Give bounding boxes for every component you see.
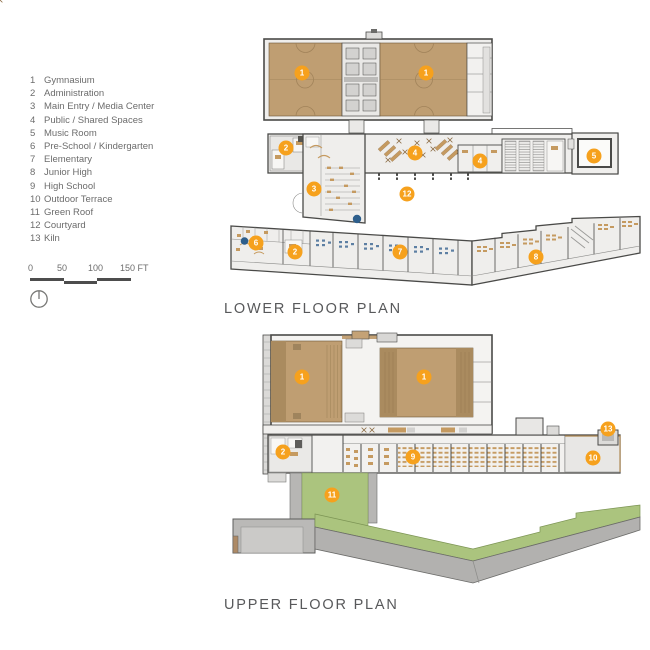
legend-item: 13Kiln [30, 232, 154, 245]
legend-item-label: Courtyard [44, 220, 86, 231]
legend-item-label: Pre-School / Kindergarten [44, 141, 153, 152]
legend-item: 7Elementary [30, 153, 154, 166]
scale-segment [97, 278, 131, 281]
upper-plan-roofscape [233, 473, 640, 583]
legend-item-label: Public / Shared Spaces [44, 115, 143, 126]
scale-segment [30, 278, 64, 281]
lower-plan-gym-block [264, 29, 492, 133]
legend-item-label: Outdoor Terrace [44, 194, 112, 205]
legend-item-label: Music Room [44, 128, 97, 139]
floor-plan-sheet: 1Gymnasium2Administration3Main Entry / M… [0, 0, 650, 650]
legend-item: 2Administration [30, 87, 154, 100]
legend-item-number: 12 [30, 219, 44, 232]
scale-label-150: 150 FT [120, 263, 149, 273]
scale-label-0: 0 [28, 263, 33, 273]
scale-label-50: 50 [57, 263, 67, 273]
legend-item-label: Main Entry / Media Center [44, 101, 154, 112]
legend-item: 6Pre-School / Kindergarten [30, 140, 154, 153]
legend-item: 9High School [30, 180, 154, 193]
legend-item: 12Courtyard [30, 219, 154, 232]
legend-item-number: 7 [30, 153, 44, 166]
legend-item-number: 5 [30, 127, 44, 140]
legend-item-label: Kiln [44, 233, 60, 244]
legend-item-label: Administration [44, 88, 104, 99]
legend-item: 11Green Roof [30, 206, 154, 219]
preschool-feature-dot [241, 237, 249, 245]
scale-bar-segments [30, 278, 131, 284]
scale-segment [64, 281, 98, 284]
legend-item: 5Music Room [30, 127, 154, 140]
legend-item-number: 9 [30, 180, 44, 193]
legend-item-number: 6 [30, 140, 44, 153]
legend-item-number: 1 [30, 74, 44, 87]
lower-plan-classroom-wing [231, 217, 640, 286]
legend-item-number: 4 [30, 114, 44, 127]
legend-item-number: 3 [30, 100, 44, 113]
upper-plan-title: UPPER FLOOR PLAN [224, 597, 399, 613]
legend-item-label: Green Roof [44, 207, 93, 218]
legend-item-number: 10 [30, 193, 44, 206]
legend-item: 10Outdoor Terrace [30, 193, 154, 206]
column-dots [378, 174, 469, 180]
legend-item-label: Junior High [44, 167, 92, 178]
legend-item-number: 11 [30, 206, 44, 219]
legend-item: 1Gymnasium [30, 74, 154, 87]
legend-item-number: 8 [30, 166, 44, 179]
legend-item-number: 2 [30, 87, 44, 100]
legend-item-number: 13 [30, 232, 44, 245]
legend: 1Gymnasium2Administration3Main Entry / M… [30, 74, 154, 246]
legend-item-label: High School [44, 181, 95, 192]
scale-label-100: 100 [88, 263, 103, 273]
lower-plan-title: LOWER FLOOR PLAN [224, 301, 402, 317]
legend-item-label: Gymnasium [44, 75, 95, 86]
north-arrow-icon [28, 288, 52, 312]
legend-item: 3Main Entry / Media Center [30, 100, 154, 113]
media-center-feature-dot [353, 215, 361, 223]
legend-item: 4Public / Shared Spaces [30, 114, 154, 127]
legend-item-label: Elementary [44, 154, 92, 165]
legend-item: 8Junior High [30, 166, 154, 179]
